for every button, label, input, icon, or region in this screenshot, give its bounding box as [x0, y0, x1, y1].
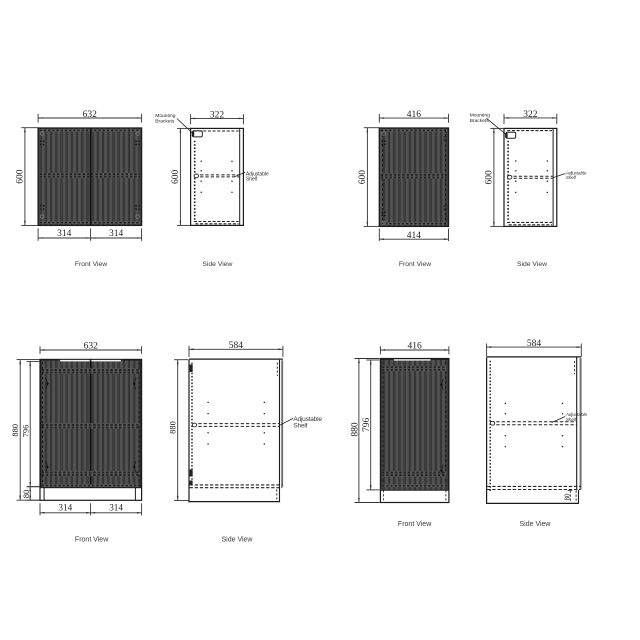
svg-text:322: 322: [210, 110, 225, 120]
svg-text:600: 600: [15, 169, 25, 184]
svg-text:Side View: Side View: [202, 261, 232, 268]
svg-text:880: 880: [351, 422, 361, 437]
svg-text:880: 880: [167, 421, 177, 434]
svg-text:600: 600: [358, 170, 368, 185]
svg-text:796: 796: [362, 417, 372, 432]
svg-text:314: 314: [109, 502, 123, 512]
svg-text:Side View: Side View: [221, 537, 253, 544]
svg-text:796: 796: [20, 425, 30, 438]
svg-text:80: 80: [563, 493, 571, 501]
svg-text:416: 416: [407, 342, 422, 352]
svg-text:600: 600: [171, 170, 181, 185]
svg-text:Front View: Front View: [75, 261, 107, 268]
svg-text:414: 414: [407, 231, 422, 241]
svg-text:584: 584: [527, 339, 542, 349]
svg-text:Brackets: Brackets: [155, 118, 175, 124]
svg-text:314: 314: [57, 229, 72, 239]
svg-text:Mounting: Mounting: [155, 113, 175, 119]
svg-text:322: 322: [523, 110, 538, 120]
svg-text:632: 632: [83, 110, 98, 120]
svg-text:Front View: Front View: [398, 521, 432, 528]
svg-text:Shelf: Shelf: [293, 422, 307, 429]
svg-text:314: 314: [58, 502, 72, 512]
svg-text:314: 314: [109, 229, 124, 239]
svg-text:Brackets: Brackets: [470, 118, 490, 124]
svg-text:80: 80: [21, 490, 31, 499]
svg-text:600: 600: [484, 170, 494, 185]
svg-text:584: 584: [229, 341, 244, 351]
svg-text:Side View: Side View: [517, 261, 547, 268]
svg-text:Shelf: Shelf: [246, 176, 258, 182]
svg-text:Front View: Front View: [75, 537, 109, 544]
svg-text:416: 416: [407, 110, 422, 120]
svg-text:Shelf: Shelf: [566, 417, 577, 423]
svg-text:Shelf: Shelf: [566, 175, 577, 180]
svg-text:Side View: Side View: [519, 521, 551, 528]
svg-text:632: 632: [84, 342, 99, 352]
svg-text:Mounting: Mounting: [470, 113, 490, 119]
svg-text:880: 880: [10, 424, 20, 437]
svg-text:Front View: Front View: [399, 261, 431, 268]
